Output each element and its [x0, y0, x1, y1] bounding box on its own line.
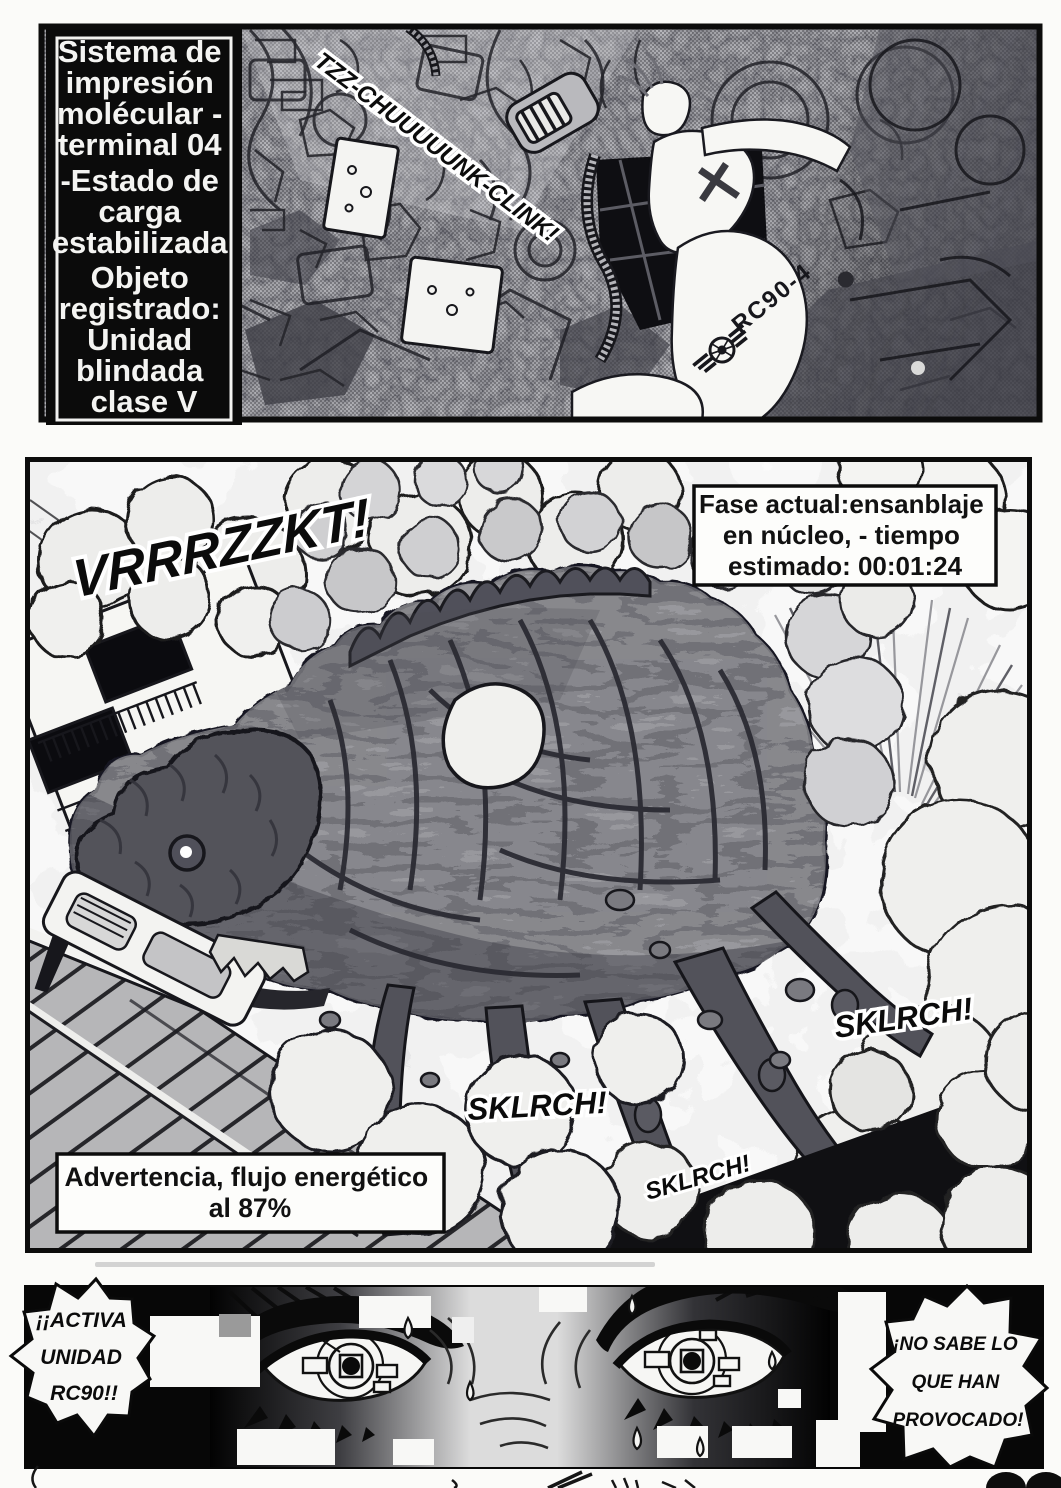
svg-text:SKLRCH!: SKLRCH!: [467, 1085, 608, 1127]
svg-text:¡¡ACTIVA UNIDAD RC90!!: ¡¡ACTIVA UNIDAD RC90!!: [36, 1309, 132, 1405]
svg-text:Fase actual:ensanblaje en: Fase actual:ensanblaje en núcleo, - tiem…: [699, 489, 991, 581]
svg-text:Sistema de impresión m: Sistema de impresión molécular - termina…: [52, 34, 236, 419]
svg-text:¡NO SABE LO QUE HAN PR: ¡NO SABE LO QUE HAN PROVOCADO!: [893, 1334, 1024, 1431]
